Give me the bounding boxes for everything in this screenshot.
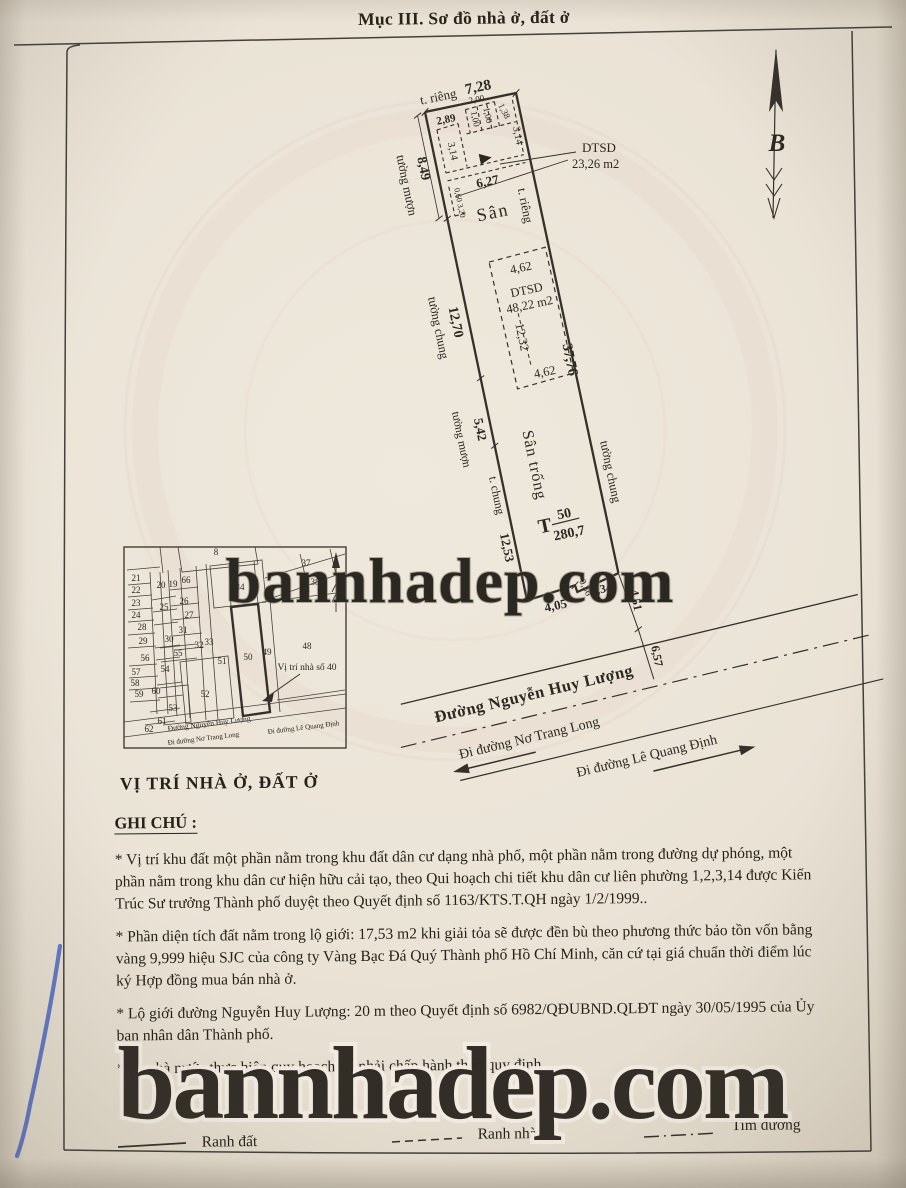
page-title: Mục III. Sơ đồ nhà ở, đất ở (0, 3, 900, 33)
legend-label-ranh-nha: Ranh nhà (478, 1125, 537, 1144)
note-paragraph: * Lộ giới đường Nguyễn Huy Lượng: 20 m t… (116, 996, 824, 1047)
legend-label-tim-duong: Tim đường (731, 1116, 800, 1135)
legend-label-ranh-dat: Ranh đất (202, 1133, 258, 1152)
note-paragraph: * Phần diện tích đất nằm trong lộ giới: … (115, 919, 824, 992)
photo-background: Mục III. Sơ đồ nhà ở, đất ở VỊ TRÍ NHÀ Ở… (0, 0, 906, 1188)
note-paragraph: * Vị trí khu đất một phần nằm trong khu … (115, 842, 824, 915)
document-sheet: Mục III. Sơ đồ nhà ở, đất ở VỊ TRÍ NHÀ Ở… (0, 0, 906, 1188)
note-paragraph: * … nhà nước thực hiện quy hoạch … phải … (117, 1051, 825, 1080)
notes-heading: GHI CHÚ : (114, 813, 197, 834)
inset-caption: VỊ TRÍ NHÀ Ở, ĐẤT Ở (120, 771, 318, 794)
notes-block: * Vị trí khu đất một phần nằm trong khu … (115, 842, 825, 1091)
